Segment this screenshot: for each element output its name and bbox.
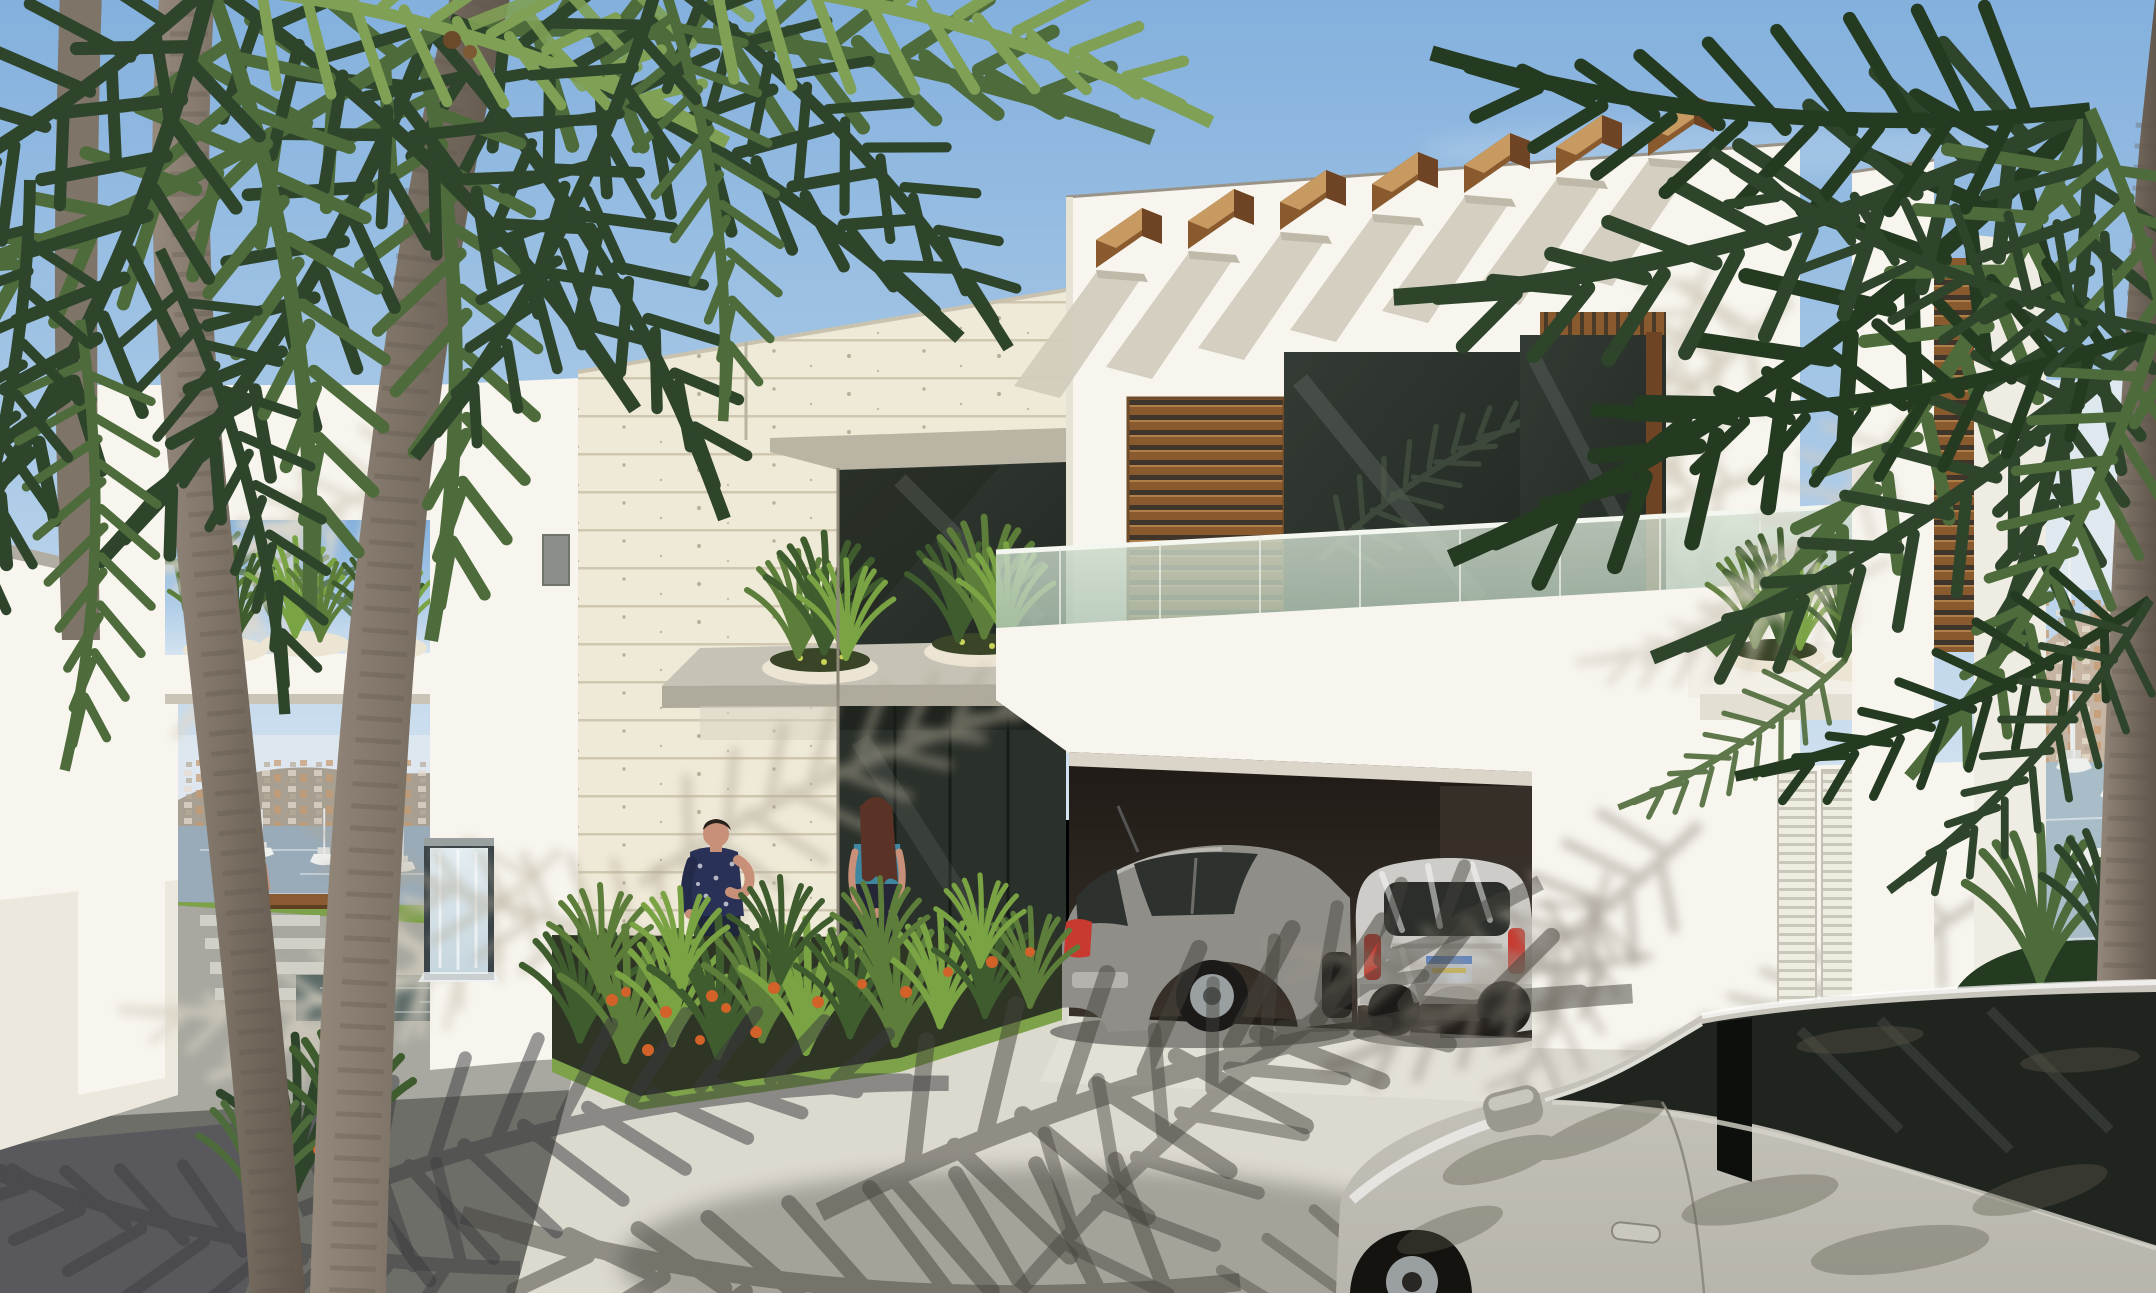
b-pillar [1717,1018,1752,1182]
small-window [543,535,569,585]
rendering-canvas [0,0,2156,1293]
architectural-rendering: Architectural rendering — modern two-sto… [0,0,2156,1293]
door-handle [1611,1222,1661,1244]
